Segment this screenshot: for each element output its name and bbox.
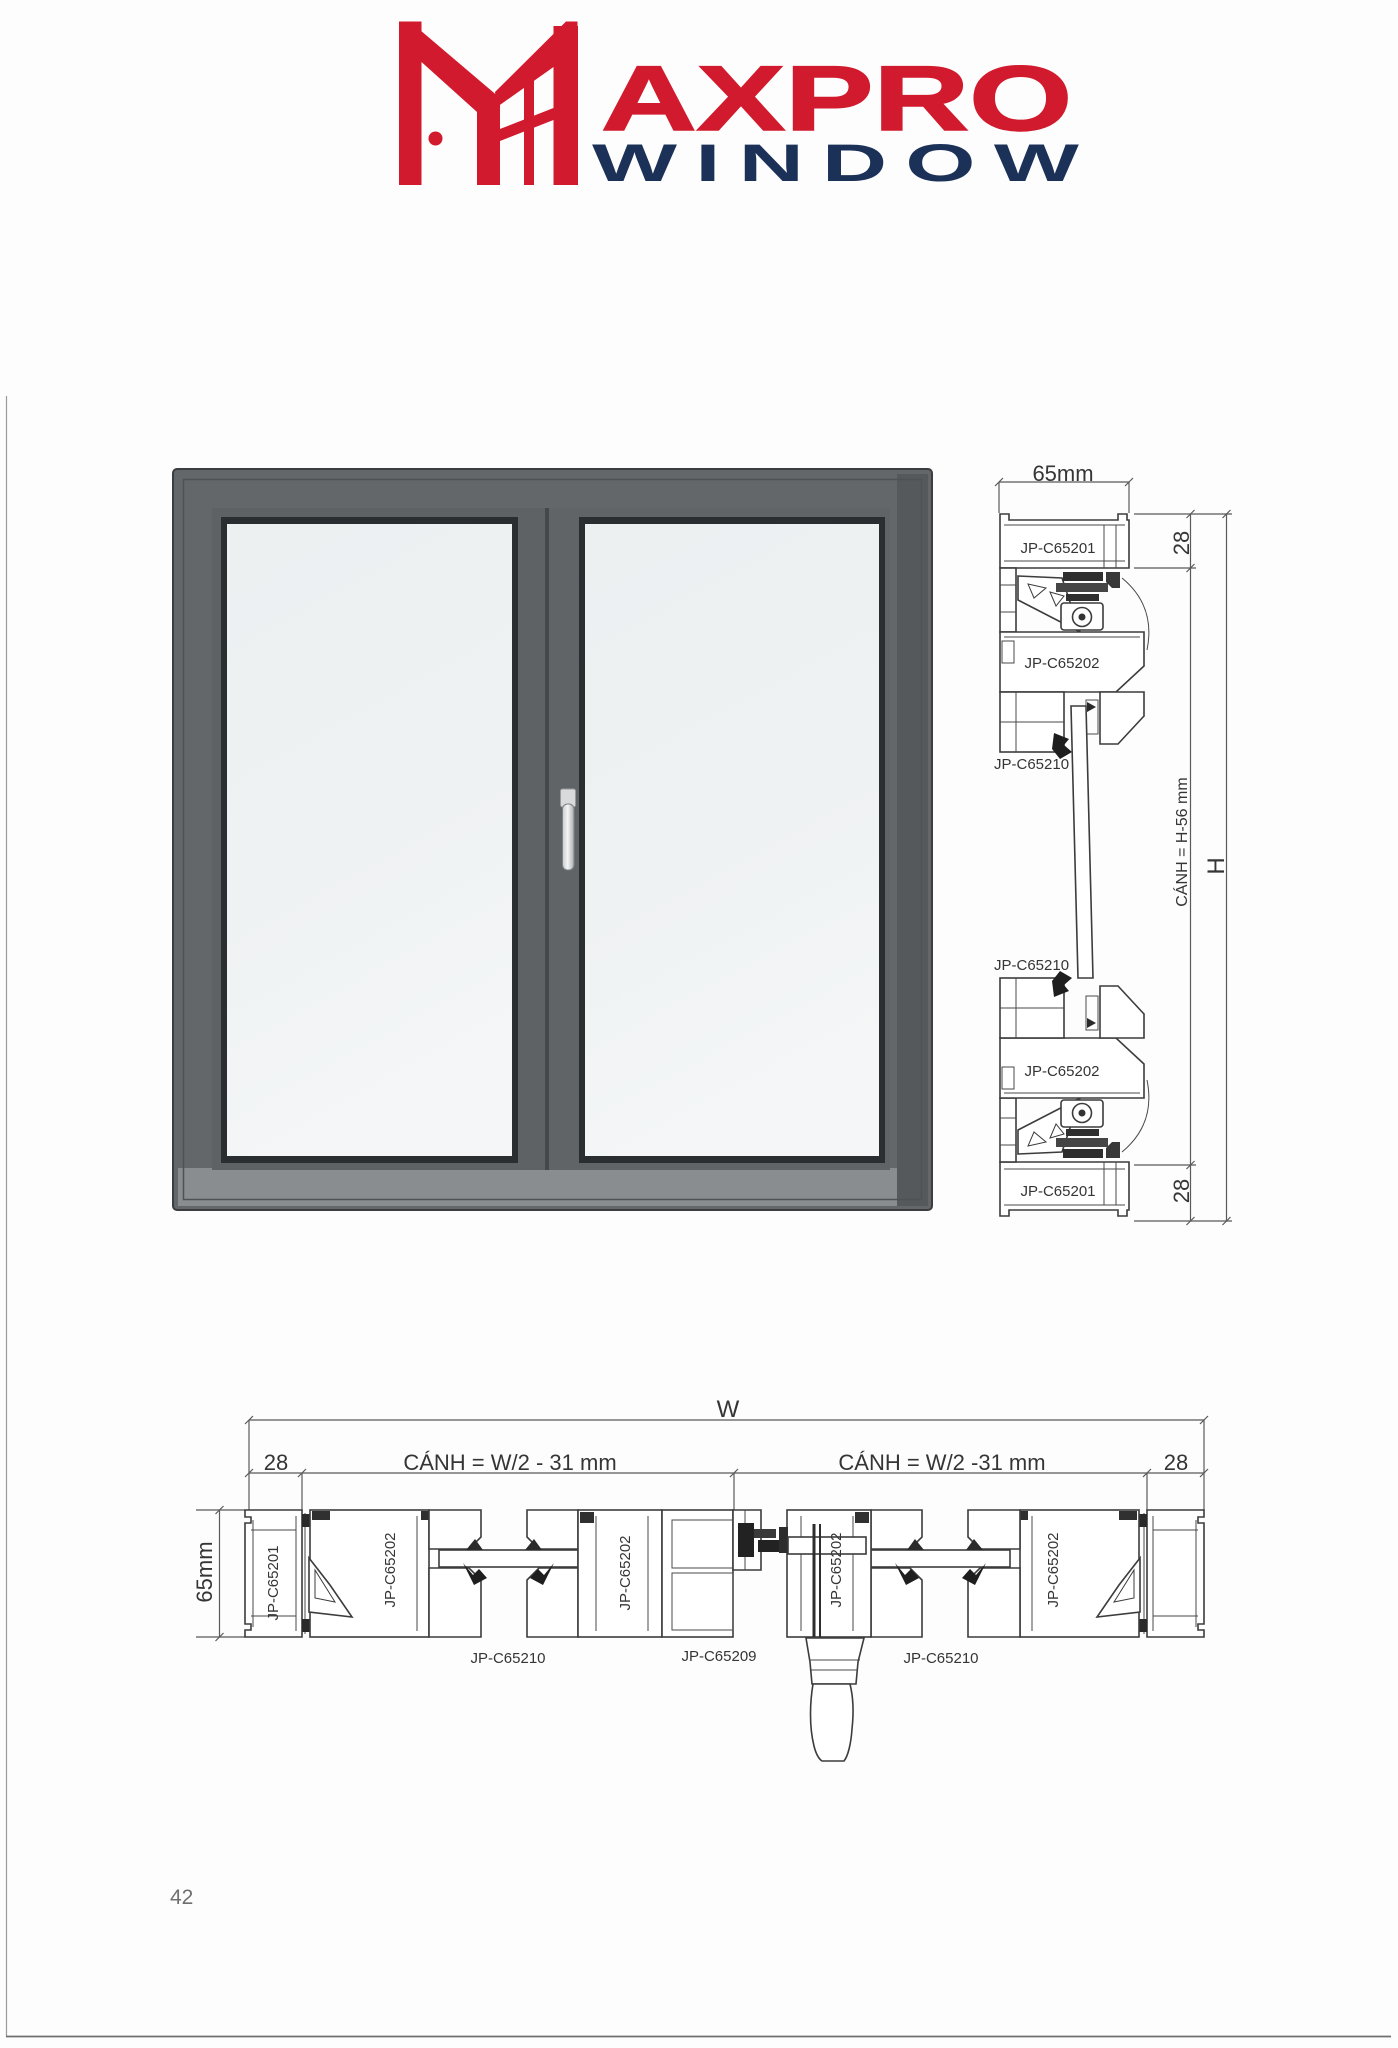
svg-text:JP-C65210: JP-C65210 bbox=[994, 756, 1069, 773]
svg-text:28: 28 bbox=[1169, 1179, 1194, 1203]
svg-text:65mm: 65mm bbox=[192, 1541, 217, 1602]
svg-text:CÁNH = W/2 -31 mm: CÁNH = W/2 -31 mm bbox=[838, 1450, 1045, 1475]
svg-text:JP-C65201: JP-C65201 bbox=[1020, 1183, 1095, 1200]
svg-text:JP-C65201: JP-C65201 bbox=[1020, 540, 1095, 557]
svg-text:JP-C65209: JP-C65209 bbox=[681, 1648, 756, 1665]
svg-text:JP-C65202: JP-C65202 bbox=[1024, 1063, 1099, 1080]
svg-text:JP-C65210: JP-C65210 bbox=[470, 1650, 545, 1667]
svg-text:JP-C65202: JP-C65202 bbox=[382, 1532, 399, 1607]
svg-text:JP-C65202: JP-C65202 bbox=[617, 1535, 634, 1610]
svg-text:JP-C65210: JP-C65210 bbox=[903, 1650, 978, 1667]
svg-text:JP-C65202: JP-C65202 bbox=[828, 1532, 845, 1607]
svg-text:28: 28 bbox=[1164, 1450, 1188, 1475]
svg-text:CÁNH = W/2 - 31 mm: CÁNH = W/2 - 31 mm bbox=[403, 1450, 616, 1475]
svg-text:W: W bbox=[717, 1396, 740, 1423]
svg-text:CÁNH = H-56 mm: CÁNH = H-56 mm bbox=[1172, 777, 1191, 906]
svg-text:JP-C65202: JP-C65202 bbox=[1045, 1532, 1062, 1607]
svg-text:WINDOW: WINDOW bbox=[592, 133, 1097, 193]
svg-text:JP-C65201: JP-C65201 bbox=[265, 1545, 282, 1620]
svg-text:42: 42 bbox=[170, 1886, 193, 1909]
svg-text:H: H bbox=[1203, 857, 1230, 874]
svg-text:28: 28 bbox=[1169, 531, 1194, 555]
svg-text:JP-C65210: JP-C65210 bbox=[994, 957, 1069, 974]
svg-text:28: 28 bbox=[264, 1450, 288, 1475]
svg-text:JP-C65202: JP-C65202 bbox=[1024, 655, 1099, 672]
